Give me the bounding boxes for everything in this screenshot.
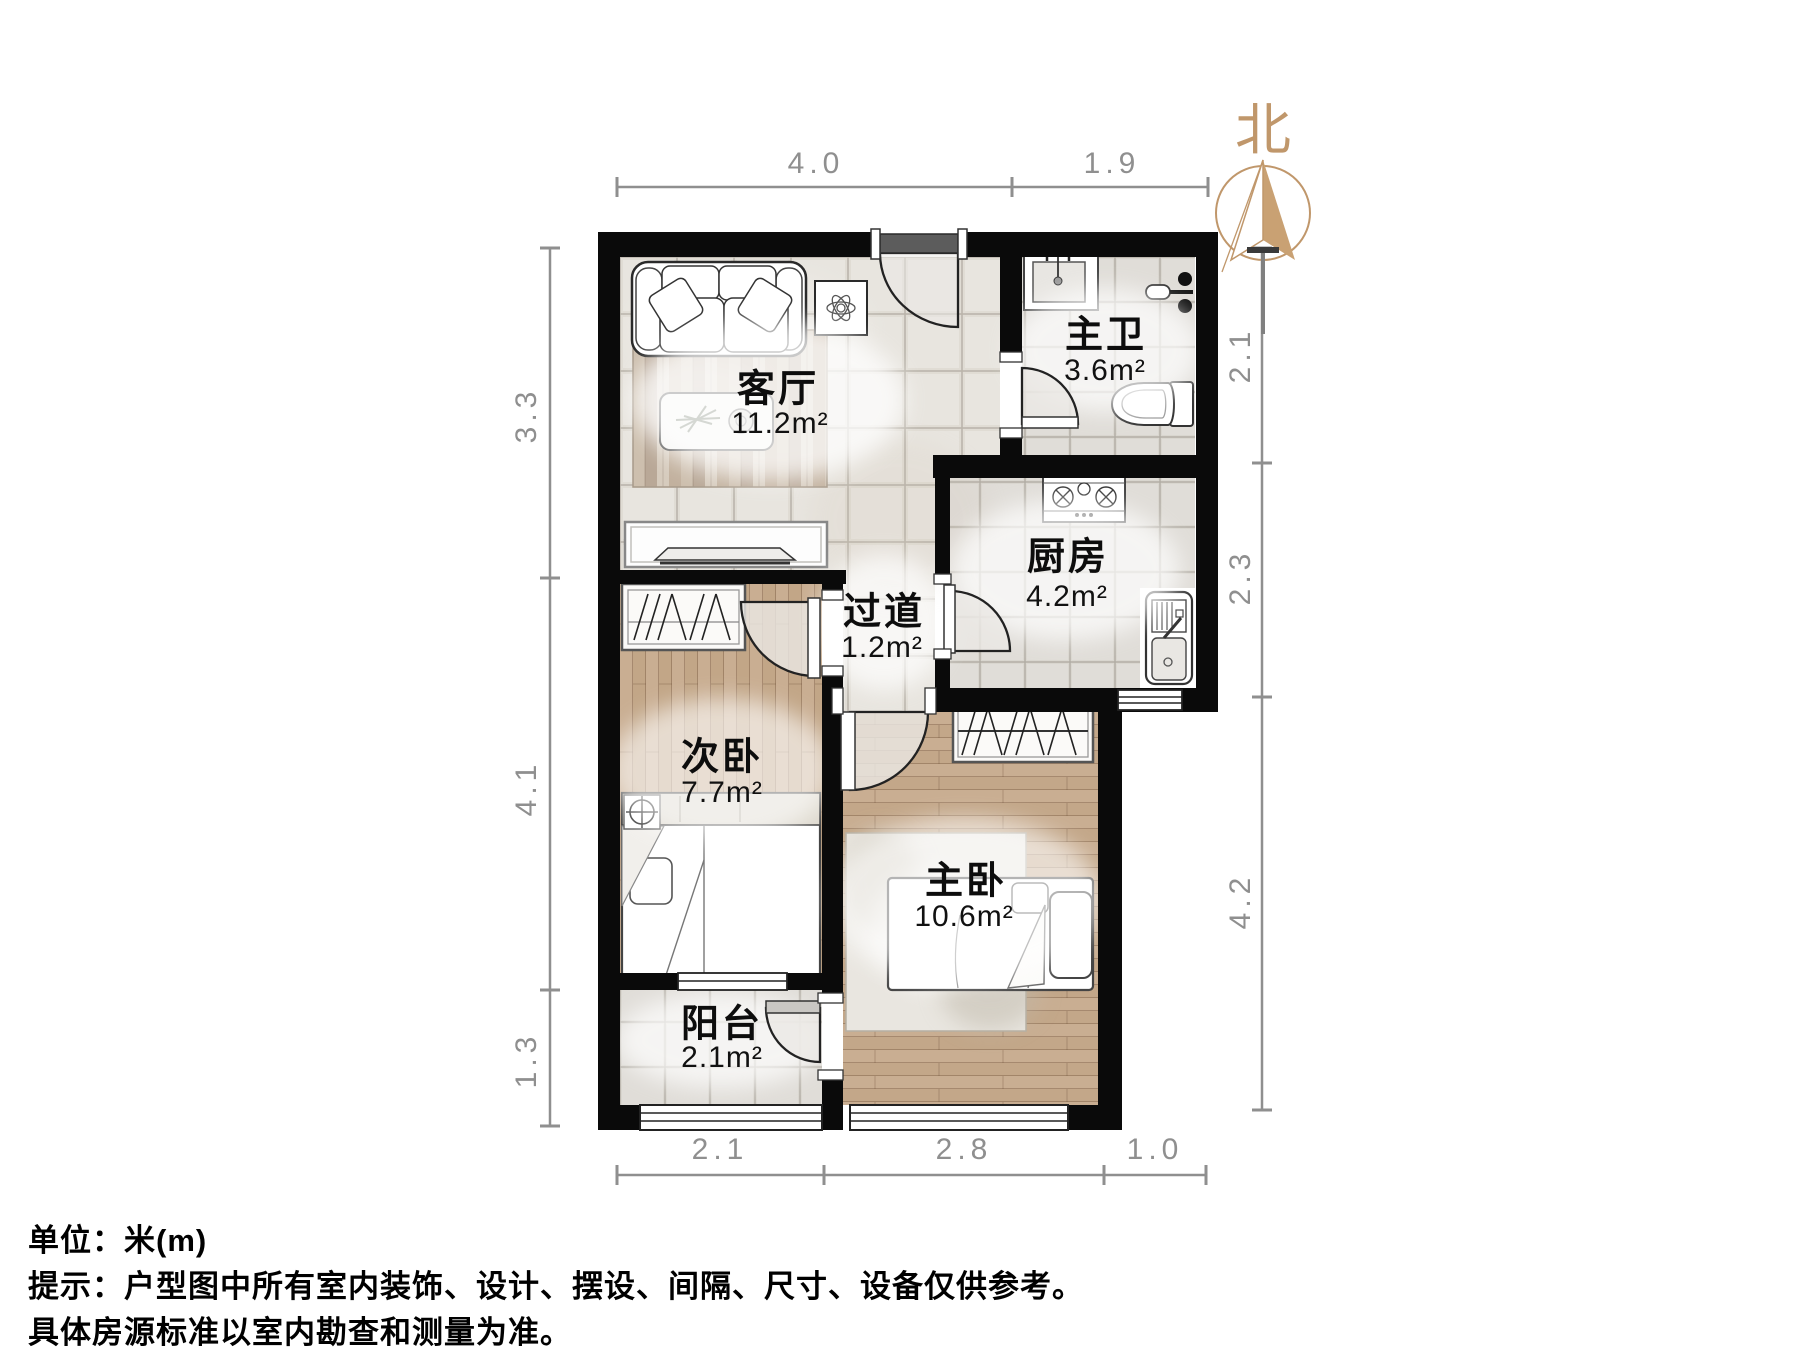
second-bedroom-wardrobe [622,584,745,650]
balcony-inner-window [678,973,787,990]
dim-bottom-1: 2.1 [692,1133,749,1167]
room-area-living: 11.2m² [731,407,828,441]
north-label: 北 [1235,86,1291,167]
room-label-hallway: 过道 [843,581,925,636]
room-area-kitchen: 4.2m² [1026,580,1108,614]
room-area-balcony: 2.1m² [681,1041,763,1075]
tip-line-2: 具体房源标准以室内勘查和测量为准。 [28,1310,1084,1356]
dim-bottom-2: 2.8 [936,1133,993,1167]
floor-plan-page: 北 客厅 11.2m² 主卫 3.6m² 厨房 4.2m² 过道 1.2m² 次… [0,0,1814,1361]
room-area-hallway: 1.2m² [841,631,923,665]
room-area-master-bath: 3.6m² [1064,354,1146,388]
disclaimer-footer: 单位：米(m) 提示：户型图中所有室内装饰、设计、摆设、间隔、尺寸、设备仅供参考… [28,1218,1084,1356]
dim-bottom-3: 1.0 [1127,1133,1184,1167]
room-label-second-bedroom: 次卧 [681,726,763,781]
tv-cabinet [625,522,827,567]
room-area-second-bedroom: 7.7m² [681,776,763,810]
balcony-window [640,1105,822,1130]
compass-icon [1216,160,1310,334]
room-label-master-bedroom: 主卧 [925,850,1007,905]
dim-right-3: 4.2 [1224,873,1258,930]
dim-left-2: 4.1 [510,760,544,817]
kitchen-window [1118,690,1182,710]
master-bedroom-window [850,1105,1068,1130]
room-label-kitchen: 厨房 [1027,526,1109,581]
room-label-living: 客厅 [737,358,819,413]
tip-line-1: 提示：户型图中所有室内装饰、设计、摆设、间隔、尺寸、设备仅供参考。 [28,1264,1084,1310]
floor-plan-canvas [0,0,1814,1361]
dim-top-2: 1.9 [1084,147,1141,181]
dim-left-1: 3.3 [510,387,544,444]
room-label-master-bath: 主卫 [1065,304,1147,359]
dim-top-1: 4.0 [788,147,845,181]
room-area-master-bedroom: 10.6m² [914,900,1013,934]
dim-right-2: 2.3 [1224,549,1258,606]
room-label-balcony: 阳台 [681,993,763,1048]
dim-line-bottom [617,1165,1206,1185]
dim-right-1: 2.1 [1224,327,1258,384]
dim-line-left [540,248,560,1126]
unit-line: 单位：米(m) [28,1218,1084,1264]
dim-left-3: 1.3 [510,1032,544,1089]
